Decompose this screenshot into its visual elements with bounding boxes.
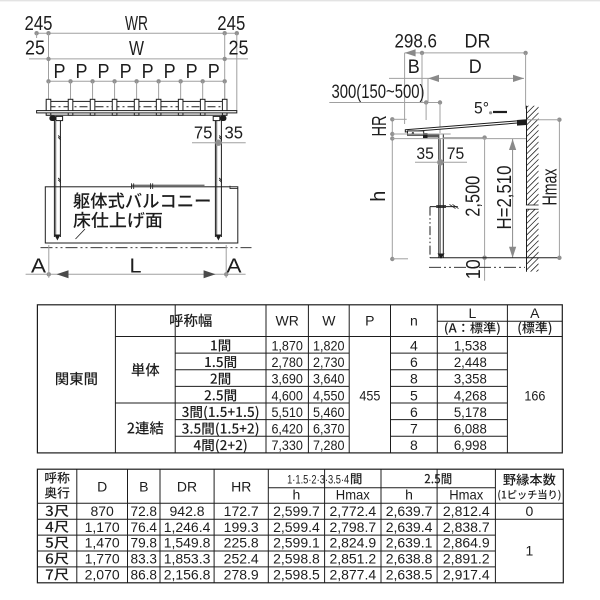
svg-text:300(150~500): 300(150~500)	[332, 82, 425, 103]
svg-text:3,358: 3,358	[454, 371, 487, 387]
svg-text:1,870: 1,870	[271, 337, 303, 353]
svg-text:7,280: 7,280	[313, 437, 345, 453]
svg-text:DR: DR	[177, 479, 197, 495]
svg-text:1,820: 1,820	[313, 337, 345, 353]
svg-text:5: 5	[410, 387, 418, 403]
svg-text:2,156.8: 2,156.8	[164, 566, 211, 582]
svg-text:225.8: 225.8	[224, 535, 259, 551]
svg-text:P: P	[208, 61, 220, 83]
svg-text:72.8: 72.8	[131, 503, 158, 519]
svg-text:35: 35	[225, 123, 244, 143]
svg-text:4,268: 4,268	[454, 387, 487, 403]
svg-text:B: B	[139, 479, 148, 495]
svg-text:76.4: 76.4	[131, 519, 158, 535]
svg-text:1,853.3: 1,853.3	[164, 551, 211, 567]
svg-text:2,780: 2,780	[271, 354, 303, 370]
svg-text:Hmax: Hmax	[449, 487, 483, 503]
svg-text:P: P	[365, 313, 374, 329]
svg-text:0: 0	[525, 503, 533, 519]
svg-text:P: P	[142, 61, 154, 83]
svg-text:L: L	[468, 305, 476, 321]
svg-text:6: 6	[410, 354, 418, 370]
svg-text:2,864.9: 2,864.9	[443, 535, 490, 551]
svg-text:79.8: 79.8	[131, 535, 158, 551]
svg-text:2,639.7: 2,639.7	[386, 503, 433, 519]
svg-text:2,851.2: 2,851.2	[329, 551, 376, 567]
svg-text:P: P	[98, 61, 110, 83]
svg-text:6,998: 6,998	[454, 437, 487, 453]
svg-text:2,838.7: 2,838.7	[443, 519, 490, 535]
svg-text:83.3: 83.3	[131, 551, 158, 567]
svg-text:1,170: 1,170	[85, 519, 120, 535]
svg-text:2,598.5: 2,598.5	[273, 566, 320, 582]
svg-text:HR: HR	[231, 479, 251, 495]
svg-text:WR: WR	[276, 313, 299, 329]
svg-text:1,549.8: 1,549.8	[164, 535, 211, 551]
svg-text:W: W	[322, 313, 336, 329]
svg-text:6,420: 6,420	[271, 421, 303, 437]
svg-text:2,917.4: 2,917.4	[443, 566, 490, 582]
svg-text:35: 35	[416, 144, 434, 163]
svg-text:5,460: 5,460	[313, 404, 345, 420]
svg-text:3,690: 3,690	[271, 371, 303, 387]
svg-text:3,640: 3,640	[313, 371, 345, 387]
svg-text:245: 245	[25, 13, 53, 35]
svg-text:1,770: 1,770	[85, 551, 120, 567]
svg-text:5°: 5°	[474, 100, 489, 118]
svg-text:D: D	[97, 479, 107, 495]
svg-text:252.4: 252.4	[224, 551, 259, 567]
svg-text:2,599.7: 2,599.7	[273, 503, 320, 519]
svg-text:2,500: 2,500	[463, 176, 485, 217]
svg-text:166: 166	[524, 387, 545, 403]
svg-text:942.8: 942.8	[170, 503, 205, 519]
svg-text:2,639.1: 2,639.1	[386, 535, 433, 551]
svg-text:2,772.4: 2,772.4	[329, 503, 376, 519]
svg-text:2,639.4: 2,639.4	[386, 519, 433, 535]
svg-text:h: h	[405, 487, 413, 503]
svg-text:6,088: 6,088	[454, 421, 487, 437]
svg-text:75: 75	[194, 123, 213, 143]
svg-text:B: B	[408, 57, 420, 78]
svg-text:DR: DR	[465, 32, 491, 53]
svg-text:1·1.5·2·3·3.5·4: 1·1.5·2·3·3.5·4	[287, 472, 349, 486]
svg-text:A: A	[31, 256, 47, 278]
svg-text:W: W	[129, 38, 144, 60]
svg-text:4: 4	[410, 337, 418, 353]
svg-text:A: A	[227, 256, 243, 278]
svg-text:25: 25	[229, 38, 249, 60]
svg-text:1,538: 1,538	[454, 337, 487, 353]
svg-text:2,798.7: 2,798.7	[329, 519, 376, 535]
svg-text:2,730: 2,730	[313, 354, 345, 370]
svg-text:2,599.4: 2,599.4	[273, 519, 320, 535]
svg-text:P: P	[164, 61, 176, 83]
svg-text:1,246.4: 1,246.4	[164, 519, 211, 535]
svg-text:H=2,510: H=2,510	[494, 166, 516, 230]
svg-text:8: 8	[410, 437, 418, 453]
svg-text:870: 870	[90, 503, 114, 519]
svg-text:86.8: 86.8	[131, 566, 158, 582]
svg-text:298.6: 298.6	[394, 32, 437, 53]
svg-text:h: h	[368, 191, 390, 202]
svg-text:172.7: 172.7	[224, 503, 259, 519]
svg-text:6,370: 6,370	[313, 421, 345, 437]
svg-text:2,448: 2,448	[454, 354, 487, 370]
svg-text:P: P	[76, 61, 88, 83]
svg-text:Hmax: Hmax	[540, 169, 562, 206]
svg-text:2,812.4: 2,812.4	[443, 503, 490, 519]
svg-text:4,550: 4,550	[313, 387, 345, 403]
svg-text:2,638.5: 2,638.5	[386, 566, 433, 582]
svg-text:2,598.8: 2,598.8	[273, 551, 320, 567]
svg-text:2,638.8: 2,638.8	[386, 551, 433, 567]
svg-text:6: 6	[410, 404, 418, 420]
svg-text:199.3: 199.3	[224, 519, 259, 535]
svg-text:2,824.9: 2,824.9	[329, 535, 376, 551]
svg-text:P: P	[120, 61, 132, 83]
svg-text:WR: WR	[125, 13, 148, 35]
svg-text:5,178: 5,178	[454, 404, 487, 420]
svg-text:4,600: 4,600	[271, 387, 303, 403]
svg-text:245: 245	[217, 13, 245, 35]
svg-text:25: 25	[25, 38, 45, 60]
svg-text:7,330: 7,330	[271, 437, 303, 453]
svg-text:Hmax: Hmax	[336, 487, 370, 503]
svg-text:5,510: 5,510	[271, 404, 303, 420]
svg-text:10: 10	[463, 259, 485, 279]
svg-text:2,877.4: 2,877.4	[329, 566, 376, 582]
svg-text:D: D	[469, 57, 482, 78]
svg-text:75: 75	[447, 144, 465, 163]
svg-text:8: 8	[410, 371, 418, 387]
svg-text:2,599.1: 2,599.1	[273, 535, 320, 551]
svg-text:1: 1	[525, 543, 533, 559]
svg-text:455: 455	[359, 387, 380, 403]
svg-text:2,070: 2,070	[85, 566, 120, 582]
svg-text:P: P	[54, 61, 66, 83]
svg-text:1,470: 1,470	[85, 535, 120, 551]
svg-text:278.9: 278.9	[224, 566, 259, 582]
svg-text:7: 7	[410, 421, 418, 437]
svg-text:P: P	[186, 61, 198, 83]
svg-text:h: h	[293, 487, 301, 503]
svg-text:L: L	[130, 256, 142, 278]
svg-text:HR: HR	[369, 116, 391, 137]
svg-text:A: A	[530, 305, 540, 321]
svg-text:n: n	[410, 313, 418, 329]
svg-text:2,891.2: 2,891.2	[443, 551, 490, 567]
